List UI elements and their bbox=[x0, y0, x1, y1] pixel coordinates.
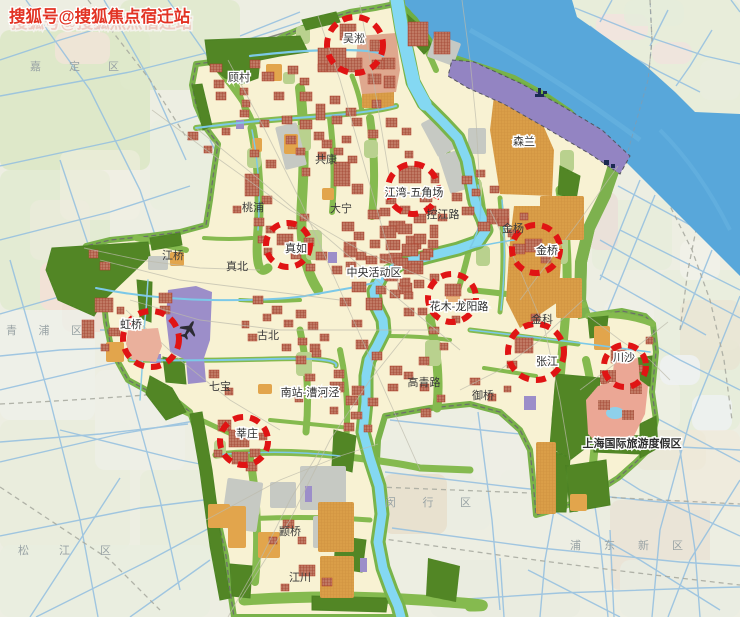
svg-text:森兰: 森兰 bbox=[513, 134, 535, 148]
svg-text:桃浦: 桃浦 bbox=[242, 200, 264, 214]
svg-text:七宝: 七宝 bbox=[209, 379, 231, 393]
svg-text:江川: 江川 bbox=[289, 571, 311, 584]
svg-text:共康: 共康 bbox=[315, 152, 337, 166]
svg-text:浦东新区: 浦东新区 bbox=[570, 538, 706, 552]
svg-text:御桥: 御桥 bbox=[472, 388, 494, 402]
svg-text:川沙: 川沙 bbox=[613, 351, 635, 364]
svg-text:江桥: 江桥 bbox=[162, 249, 184, 262]
svg-text:搜狐号@搜狐焦点宿迁站: 搜狐号@搜狐焦点宿迁站 bbox=[9, 6, 191, 26]
svg-text:金桥: 金桥 bbox=[536, 243, 558, 257]
svg-text:颛桥: 颛桥 bbox=[279, 524, 301, 538]
svg-text:高青路: 高青路 bbox=[408, 375, 441, 389]
svg-text:松江区: 松江区 bbox=[18, 543, 141, 557]
svg-text:花木-龙阳路: 花木-龙阳路 bbox=[430, 300, 489, 313]
svg-text:张江: 张江 bbox=[536, 355, 558, 368]
svg-text:控江路: 控江路 bbox=[427, 207, 460, 221]
svg-text:嘉定区: 嘉定区 bbox=[30, 59, 147, 73]
svg-text:中央活动区: 中央活动区 bbox=[347, 266, 402, 279]
svg-text:古北: 古北 bbox=[257, 329, 279, 342]
svg-text:顾村: 顾村 bbox=[228, 70, 250, 84]
svg-text:大宁: 大宁 bbox=[330, 201, 352, 215]
svg-text:虹桥: 虹桥 bbox=[120, 318, 142, 331]
svg-text:闵行区: 闵行区 bbox=[385, 495, 498, 509]
svg-text:金杨: 金杨 bbox=[502, 221, 524, 235]
svg-text:金科: 金科 bbox=[531, 312, 553, 326]
svg-text:真北: 真北 bbox=[226, 259, 248, 273]
svg-text:莘庄: 莘庄 bbox=[236, 426, 258, 440]
svg-text:上海国际旅游度假区: 上海国际旅游度假区 bbox=[583, 436, 682, 450]
svg-text:江湾-五角场: 江湾-五角场 bbox=[385, 185, 444, 199]
svg-text:青浦区: 青浦区 bbox=[6, 324, 104, 337]
svg-text:真如: 真如 bbox=[285, 241, 307, 255]
svg-text:吴淞: 吴淞 bbox=[343, 32, 365, 45]
svg-text:南站-漕河泾: 南站-漕河泾 bbox=[281, 385, 340, 399]
